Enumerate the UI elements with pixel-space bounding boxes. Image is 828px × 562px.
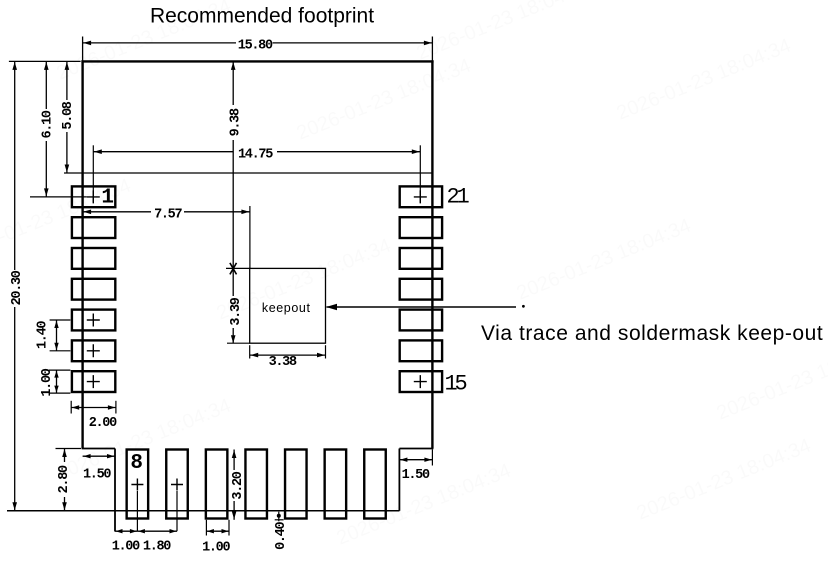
svg-text:21: 21 (446, 185, 469, 210)
svg-text:1.00: 1.00 (112, 540, 140, 555)
svg-text:0.40: 0.40 (274, 522, 289, 550)
svg-text:1.00: 1.00 (202, 540, 230, 555)
svg-text:20.30: 20.30 (10, 270, 25, 305)
svg-text:9.38: 9.38 (229, 108, 244, 136)
svg-text:6.10: 6.10 (41, 110, 56, 138)
svg-text:15.80: 15.80 (238, 39, 273, 54)
svg-text:1.40: 1.40 (36, 321, 51, 349)
svg-text:1.80: 1.80 (143, 540, 171, 555)
svg-text:2.00: 2.00 (89, 416, 117, 431)
svg-text:5.08: 5.08 (61, 101, 76, 129)
svg-text:7.57: 7.57 (154, 208, 182, 223)
svg-text:Via trace and soldermask keep-: Via trace and soldermask keep-out (481, 322, 823, 345)
svg-text:3.38: 3.38 (269, 355, 297, 370)
svg-text:3.20: 3.20 (231, 471, 246, 499)
svg-text:1.00: 1.00 (40, 368, 55, 396)
svg-text:15: 15 (444, 371, 466, 396)
svg-text:1.50: 1.50 (402, 468, 430, 483)
svg-text:14.75: 14.75 (238, 147, 273, 162)
